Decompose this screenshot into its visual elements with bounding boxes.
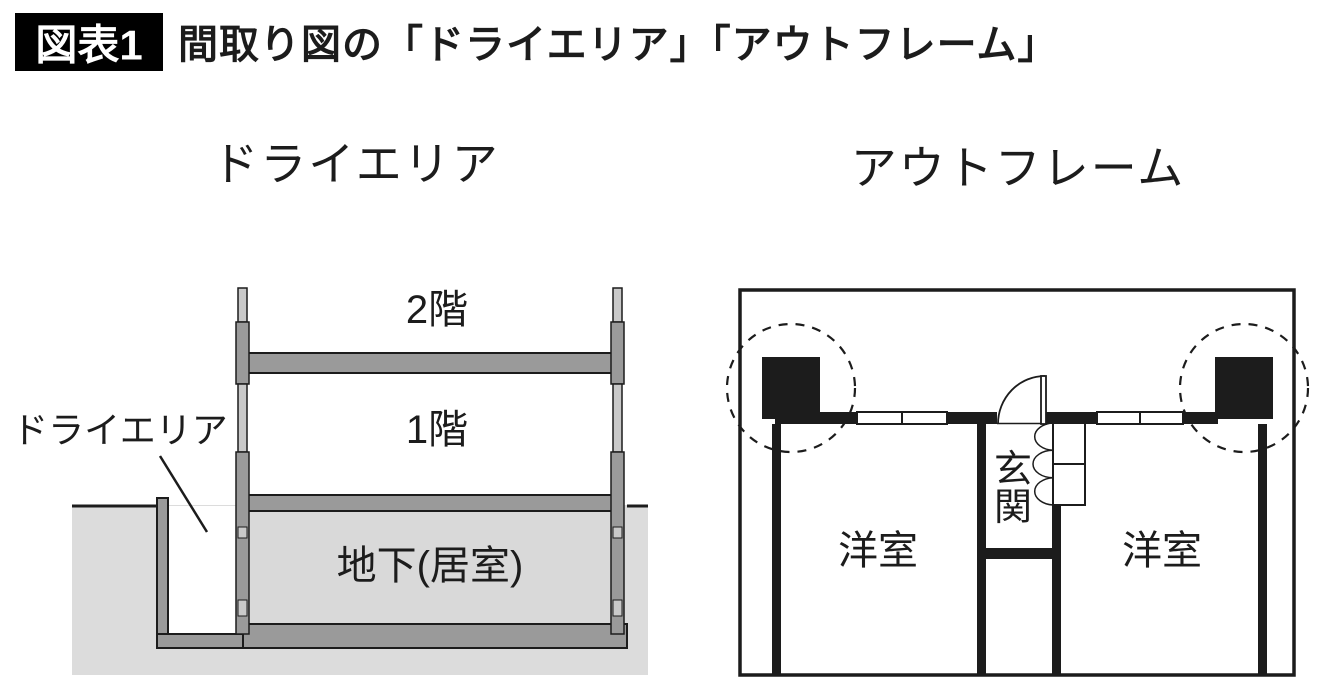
closet-box (1053, 423, 1085, 464)
figure-header: 図表1 間取り図の「ドライエリア」「アウトフレーム」 (15, 13, 1058, 71)
pit-floor-slab (157, 634, 243, 648)
column-right (1215, 357, 1273, 419)
first-floor-slab (243, 495, 617, 511)
figure-canvas: 図表1 間取り図の「ドライエリア」「アウトフレーム」 ドライエリア (0, 0, 1340, 700)
entrance-right-wall (1052, 505, 1061, 675)
floor1-label: 1階 (406, 408, 468, 452)
foundation-slab (237, 624, 627, 648)
dry-area-title: ドライエリア (212, 138, 500, 190)
wall-strip (947, 412, 997, 424)
wall-notch (613, 600, 622, 616)
building-left-wall (236, 288, 249, 634)
figure-page: 図表1 間取り図の「ドライエリア」「アウトフレーム」 ドライエリア (0, 0, 1340, 700)
room-left-label: 洋室 (838, 529, 918, 573)
figure-badge-label: 図表1 (35, 22, 142, 69)
wall-joint (611, 322, 624, 384)
plan-north-wall (775, 412, 1218, 424)
wall-segment (238, 288, 247, 322)
entrance-label-char1: 玄 (994, 449, 1032, 491)
closet-box (1053, 464, 1085, 505)
entrance-label-char2: 関 (994, 487, 1032, 529)
figure-title: 間取り図の「ドライエリア」「アウトフレーム」 (178, 23, 1058, 67)
wall-segment (613, 384, 622, 452)
wall-strip (1183, 412, 1218, 424)
entrance-step-wall (977, 548, 1061, 559)
wall-segment (613, 288, 622, 322)
retaining-wall (157, 498, 168, 634)
outframe-title: アウトフレーム (851, 142, 1186, 194)
basement-label: 地下(居室) (337, 544, 524, 588)
wall-joint (236, 322, 249, 384)
room-right-wall (1258, 424, 1267, 675)
room-right-label: 洋室 (1122, 529, 1202, 573)
wall-notch (238, 600, 247, 616)
wall-segment (238, 384, 247, 452)
door-leaf (1041, 376, 1046, 424)
building-right-wall (611, 288, 624, 634)
floor2-label: 2階 (406, 288, 468, 332)
second-floor-slab (243, 353, 617, 373)
dry-area-diagram: ドライエリア (12, 138, 648, 675)
outframe-diagram: アウトフレーム (727, 142, 1308, 675)
wall-notch (238, 527, 247, 538)
wall-notch (613, 527, 622, 538)
room-left-wall (772, 424, 781, 675)
column-left (762, 357, 820, 419)
dry-area-callout-label: ドライエリア (12, 410, 228, 451)
